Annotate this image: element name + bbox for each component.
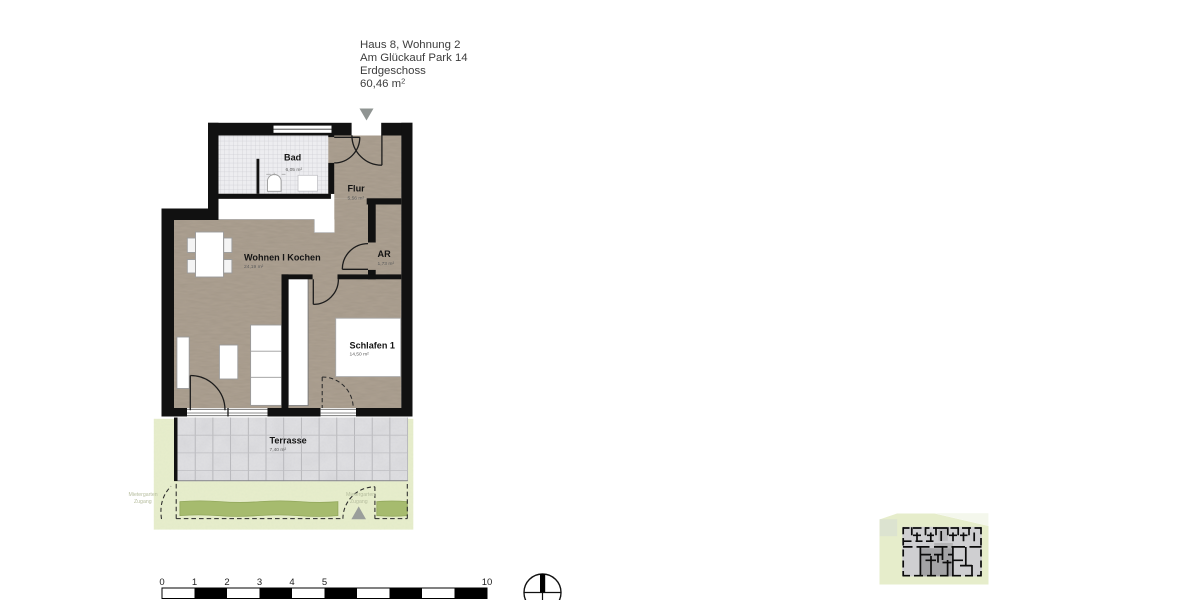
svg-text:Erdgeschoss: Erdgeschoss [360, 65, 426, 77]
svg-text:0: 0 [159, 577, 164, 588]
svg-text:Bad: Bad [284, 152, 301, 162]
svg-text:Wohnen I Kochen: Wohnen I Kochen [244, 253, 321, 263]
svg-text:5: 5 [322, 577, 327, 588]
svg-text:4: 4 [289, 577, 294, 588]
svg-text:1,73 m²: 1,73 m² [378, 261, 395, 267]
svg-text:10: 10 [482, 577, 493, 588]
svg-text:Zugang: Zugang [350, 499, 368, 505]
svg-text:60,46 m2: 60,46 m2 [360, 77, 405, 91]
svg-text:6,05 m²: 6,05 m² [286, 167, 303, 173]
svg-text:Zugang: Zugang [134, 499, 152, 505]
svg-text:Mietergarten: Mietergarten [346, 492, 375, 498]
svg-text:3: 3 [257, 577, 262, 588]
svg-text:2: 2 [224, 577, 229, 588]
svg-text:24,19 m²: 24,19 m² [244, 264, 264, 270]
svg-text:Schlafen 1: Schlafen 1 [350, 341, 396, 351]
svg-text:AR: AR [378, 249, 392, 259]
svg-text:Terrasse: Terrasse [270, 435, 307, 445]
svg-text:Mietergarten: Mietergarten [129, 492, 158, 498]
svg-text:7,40 m²: 7,40 m² [270, 447, 287, 453]
svg-text:1: 1 [192, 577, 197, 588]
svg-text:5,56 m²: 5,56 m² [348, 196, 365, 202]
svg-text:14,50 m²: 14,50 m² [350, 352, 370, 358]
svg-text:Haus 8, Wohnung 2: Haus 8, Wohnung 2 [360, 39, 460, 51]
svg-text:Am Glückauf Park 14: Am Glückauf Park 14 [360, 52, 468, 64]
svg-text:Flur: Flur [348, 183, 366, 193]
